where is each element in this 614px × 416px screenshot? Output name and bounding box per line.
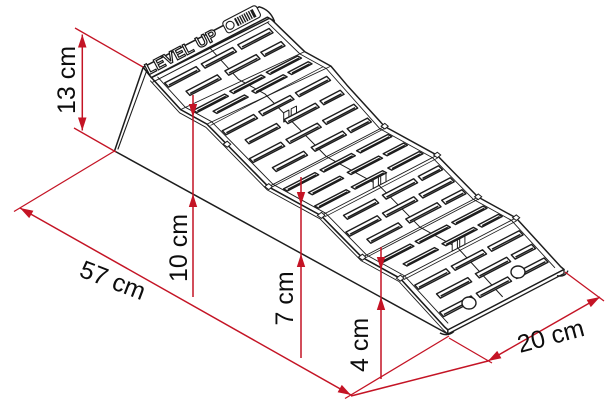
svg-text:7 cm: 7 cm	[271, 271, 299, 325]
svg-text:10 cm: 10 cm	[165, 214, 193, 282]
svg-text:13 cm: 13 cm	[53, 46, 81, 114]
svg-text:4 cm: 4 cm	[346, 318, 374, 372]
